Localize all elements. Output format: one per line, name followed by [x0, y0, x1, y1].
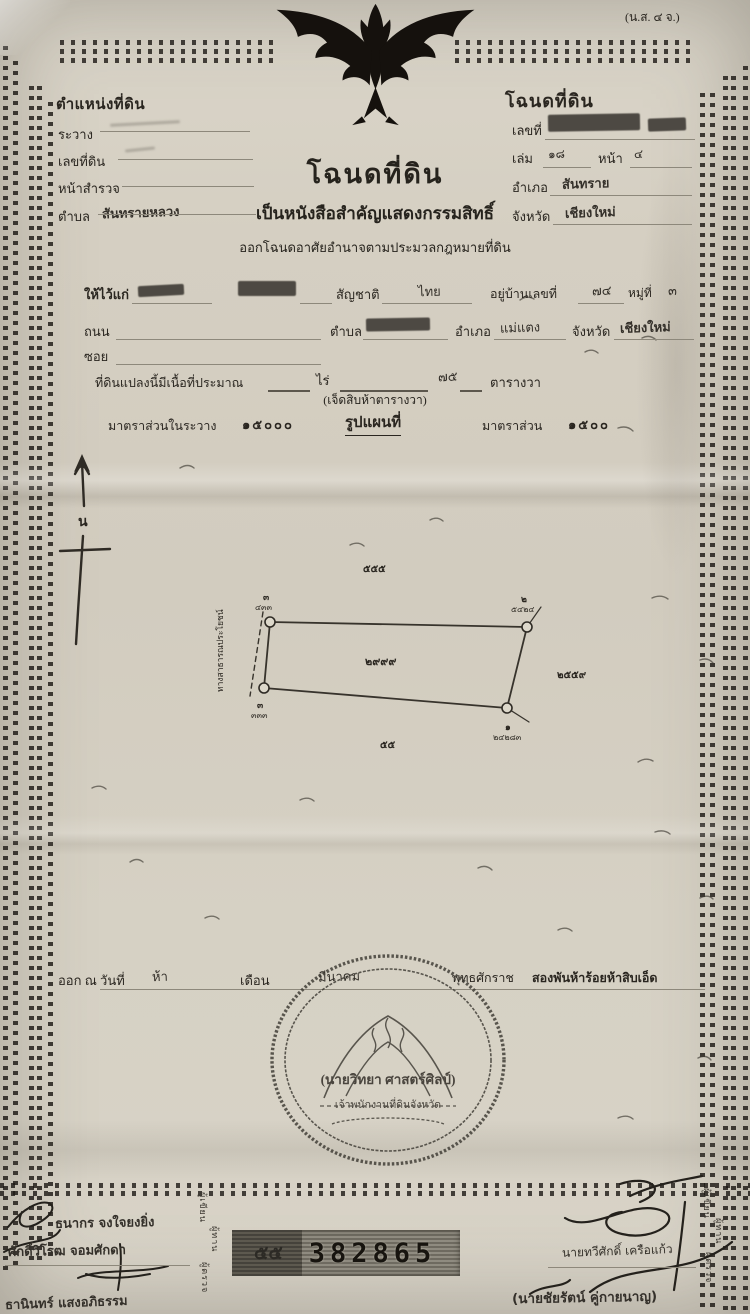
seal-position: เจ้าพนักงานที่ดินจังหวัด [335, 1097, 441, 1111]
road-label: ถนน [84, 321, 110, 342]
top-distance: ๕๕๕ [363, 564, 386, 575]
moo-label: หมู่ที่ [628, 284, 652, 303]
corner-tl-ref: ๔๓๓ [255, 603, 273, 612]
position-block-title: ตำแหน่งที่ดิน [56, 92, 145, 116]
plot-diagram: ๓ ๔๓๓ ๓ ๓๓๓ ๒ ๕๔๒๔ ๑ ๒๔๒๘๓ ๒๙๙๙ ๕๕๕ ๕๕ ๒… [205, 550, 635, 765]
corner-tr-id: ๒ [521, 594, 527, 604]
address-label: อยู่บ้านเลขที่ [490, 284, 557, 304]
adjacent-parcel-number: ๒๕๕๙ [557, 670, 587, 681]
signature-right-name-2: (นายชัยรัตน์ คู่กายนาญ) [512, 1285, 657, 1310]
seal-signatory: (นายวิทยา ศาสตร์ศิลป์) [321, 1071, 456, 1087]
signature-left-name-1: ธนากร จงใจยงยิ่ง [55, 1211, 155, 1234]
nationality-label: สัญชาติ [336, 284, 380, 305]
corner-bl-ref: ๓๓๓ [251, 711, 268, 720]
deed-title-text: โฉนดที่ดิน [307, 159, 444, 189]
rawang-label: ระวาง [58, 124, 93, 145]
map-figure-title: รูปแผนที่ [345, 410, 401, 436]
area-label: ที่ดินแปลงนี้มีเนื้อที่ประมาณ [95, 373, 243, 393]
redacted-grantee-name [238, 281, 296, 296]
role-reader-left: ผู้ทาน [208, 1226, 222, 1252]
role-writer-left: ผู้เขียน [196, 1192, 210, 1223]
north-arrow-icon: น [48, 448, 158, 658]
deed-authority-text: ออกโฉนดอาศัยอำนาจตามประมวลกฎหมายที่ดิน [239, 240, 510, 255]
corner-bl-id: ๓ [257, 700, 263, 710]
role-examiner-left: ผู้ตรวจ [198, 1262, 212, 1293]
serial-number-band: ๕๕ 382865 [232, 1230, 460, 1276]
grantee-amphoe-label: อำเภอ [455, 321, 491, 342]
corner-br-ref: ๒๔๒๘๓ [493, 733, 522, 742]
parcel-number: ๒๙๙๙ [365, 656, 396, 668]
deed-no-label: เลขที่ [512, 120, 542, 141]
given-to-label: ให้ไว้แก่ [84, 284, 129, 305]
corner-tl-id: ๓ [263, 592, 269, 602]
map-scale-label: มาตราส่วน [482, 416, 542, 436]
garuda-emblem-icon [268, 0, 483, 128]
deed-authority: ออกโฉนดอาศัยอำนาจตามประมวลกฎหมายที่ดิน [0, 237, 750, 258]
serial-number: 382865 [309, 1238, 437, 1269]
corner-br-id: ๑ [505, 722, 511, 732]
soi-label: ซอย [84, 346, 108, 367]
wa-value: ๗๕ [438, 366, 458, 388]
land-title-deed-photo: (น.ส. ๔ จ.) ตำแหน่งที่ดิน ระวาง เลขที่ดิ… [0, 0, 750, 1314]
north-label: น [78, 515, 88, 530]
sheet-scale-label: มาตราส่วนในระวาง [108, 416, 217, 436]
corner-tr-ref: ๕๔๒๔ [511, 605, 534, 614]
sheet-scale-value: ๑๕๐๐๐ [242, 414, 294, 435]
official-seal: (นายวิทยา ศาสตร์ศิลป์) เจ้าพนักงานที่ดิน… [262, 948, 514, 1174]
deed-title: โฉนดที่ดิน [0, 152, 750, 195]
wa-label: ตารางวา [490, 372, 541, 393]
deed-subtitle-text: เป็นหนังสือสำคัญแสดงกรรมสิทธิ์ [256, 204, 494, 223]
rai-label: ไร่ [316, 370, 330, 391]
map-scale-value: ๑๕๐๐ [568, 414, 610, 435]
serial-prefix: ๕๕ [254, 1238, 283, 1268]
deed-block-title: โฉนดที่ดิน [505, 86, 594, 115]
moo-value: ๓ [668, 280, 678, 301]
area-in-words-text: (เจ็ดสิบห้าตารางวา) [323, 393, 427, 407]
grantee-tambon-label: ตำบล [330, 321, 362, 342]
deed-subtitle: เป็นหนังสือสำคัญแสดงกรรมสิทธิ์ [0, 200, 750, 227]
area-in-words: (เจ็ดสิบห้าตารางวา) [250, 391, 500, 410]
public-road-label: ทางสาธารณประโยชน์ [215, 609, 225, 692]
grantee-province-label: จังหวัด [572, 321, 610, 342]
bottom-distance: ๕๕ [380, 740, 396, 751]
form-code: (น.ส. ๔ จ.) [625, 8, 680, 27]
